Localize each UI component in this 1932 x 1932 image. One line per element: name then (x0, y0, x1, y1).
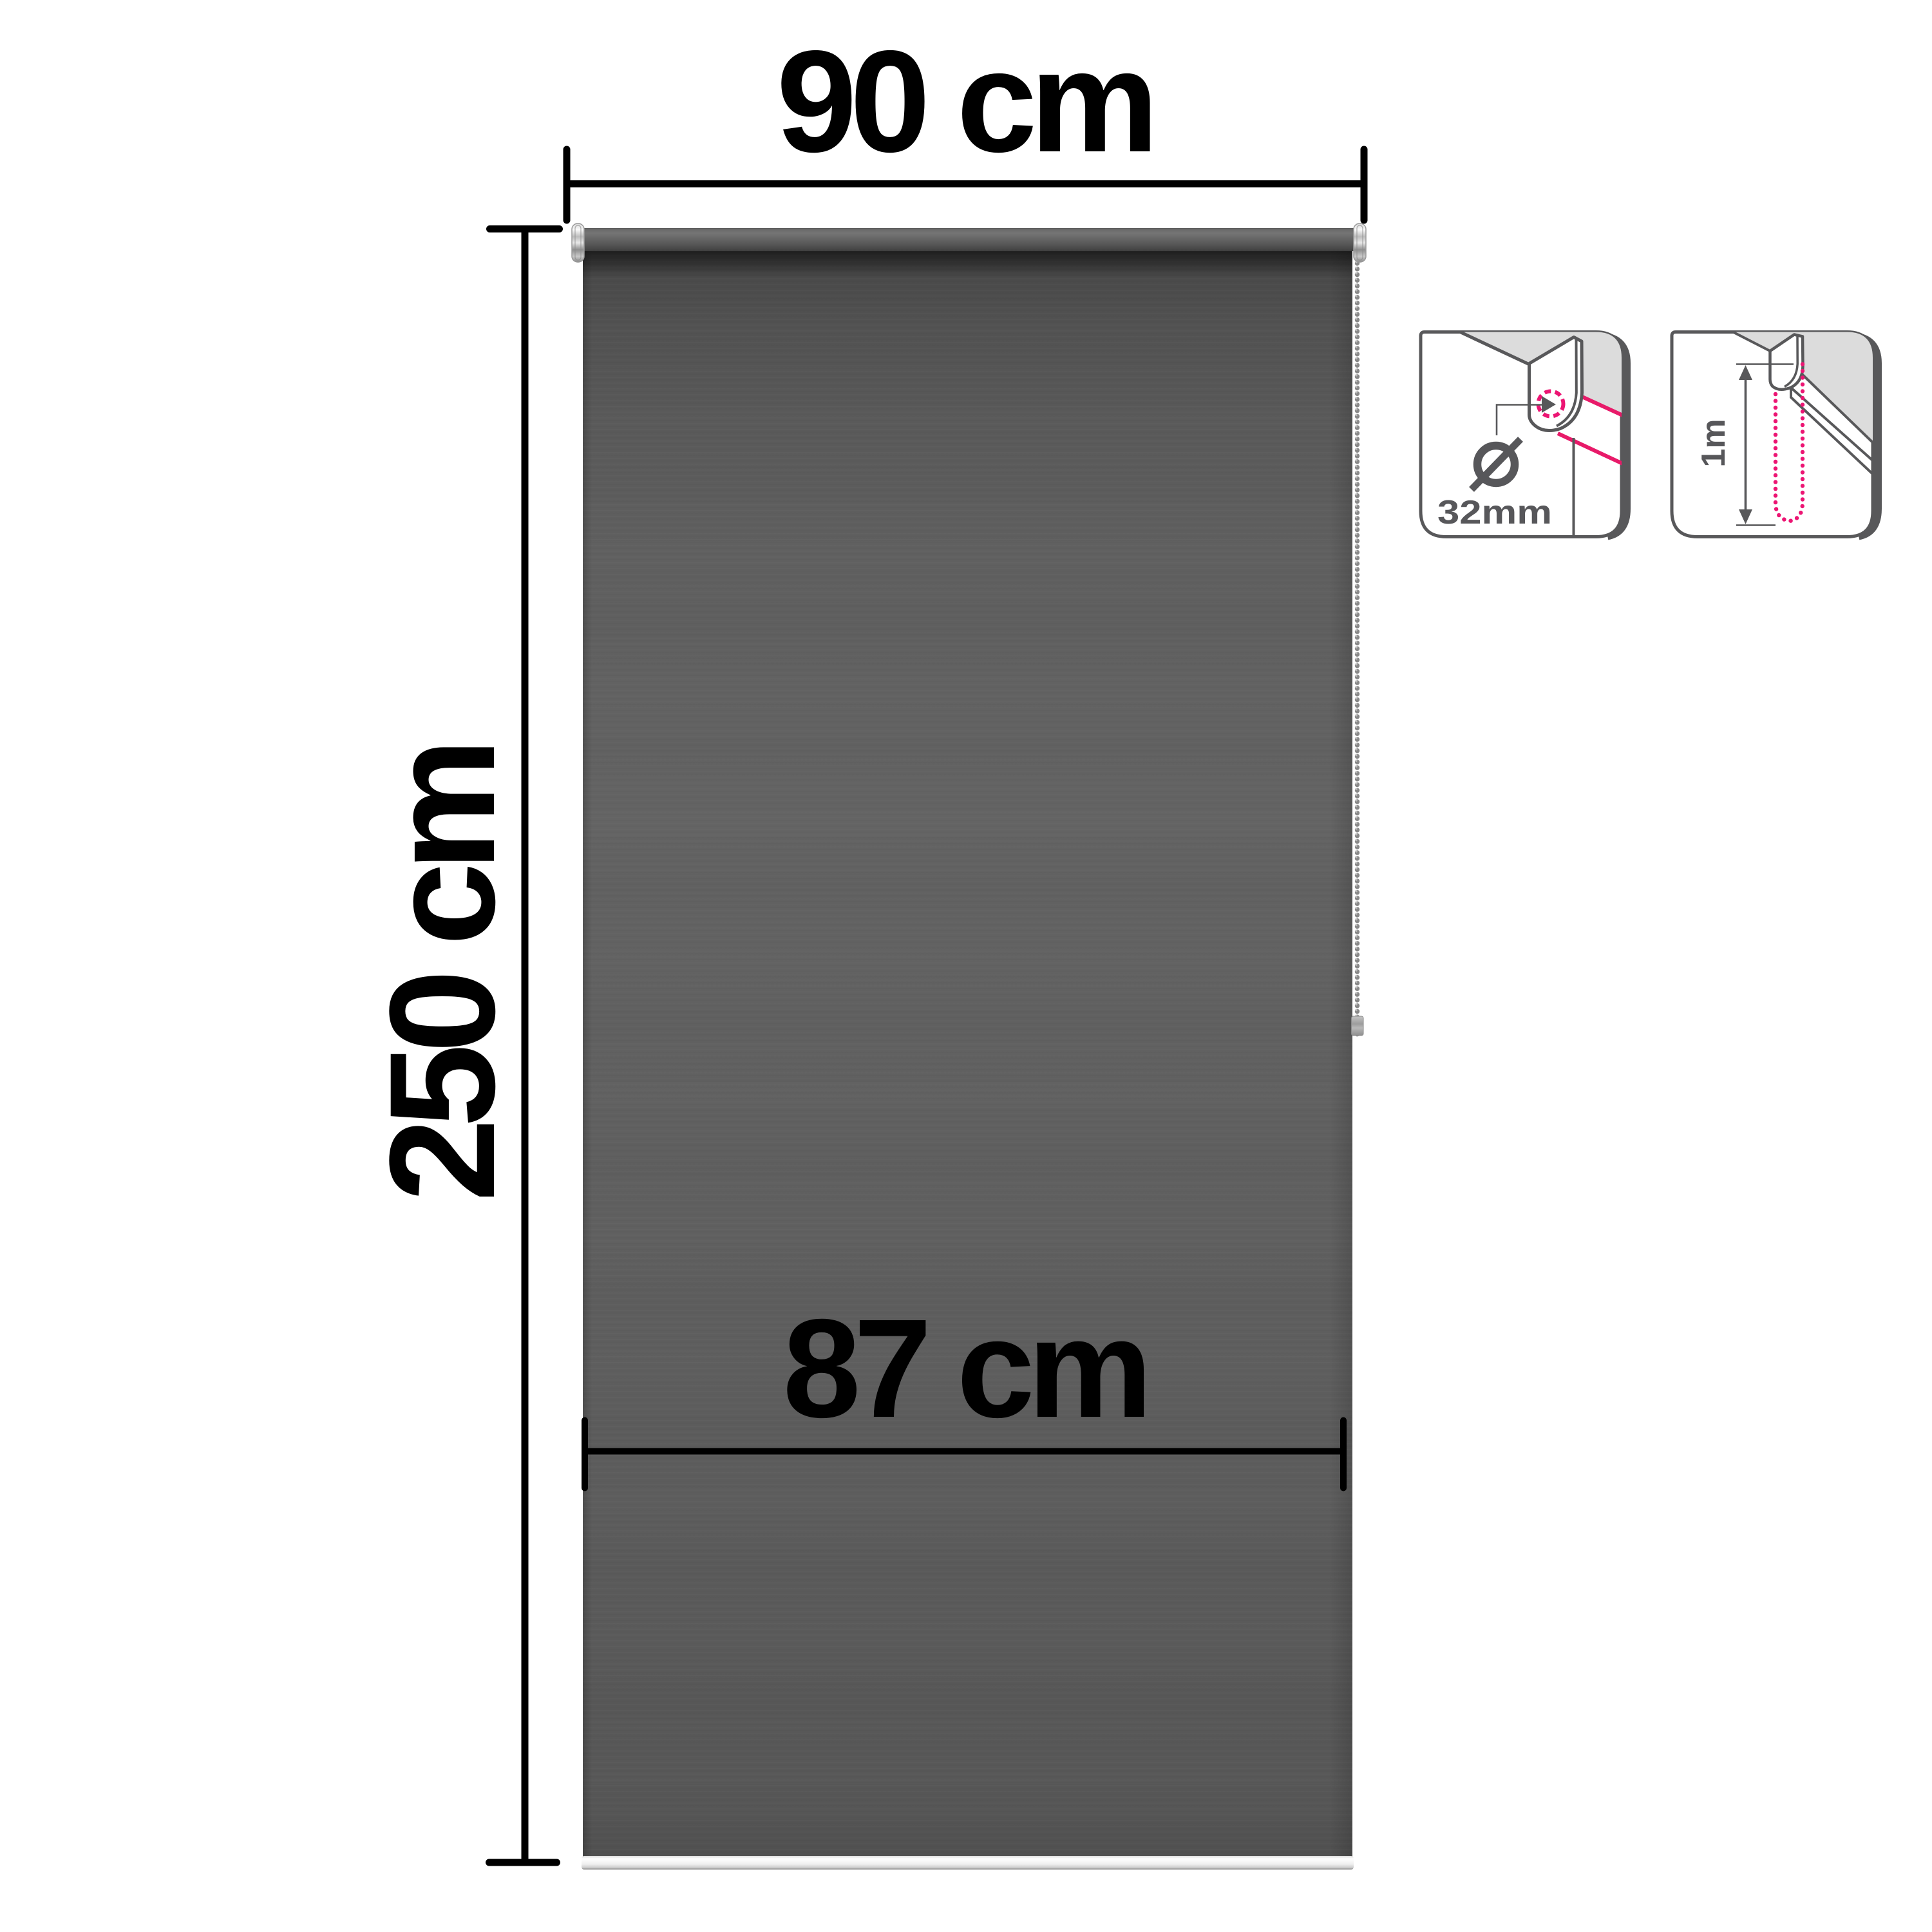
svg-text:1m: 1m (1695, 419, 1732, 467)
svg-text:32mm: 32mm (1437, 494, 1552, 531)
svg-text:87 cm: 87 cm (782, 1291, 1145, 1447)
svg-text:250 cm: 250 cm (359, 747, 526, 1202)
svg-text:90 cm: 90 cm (777, 20, 1152, 182)
